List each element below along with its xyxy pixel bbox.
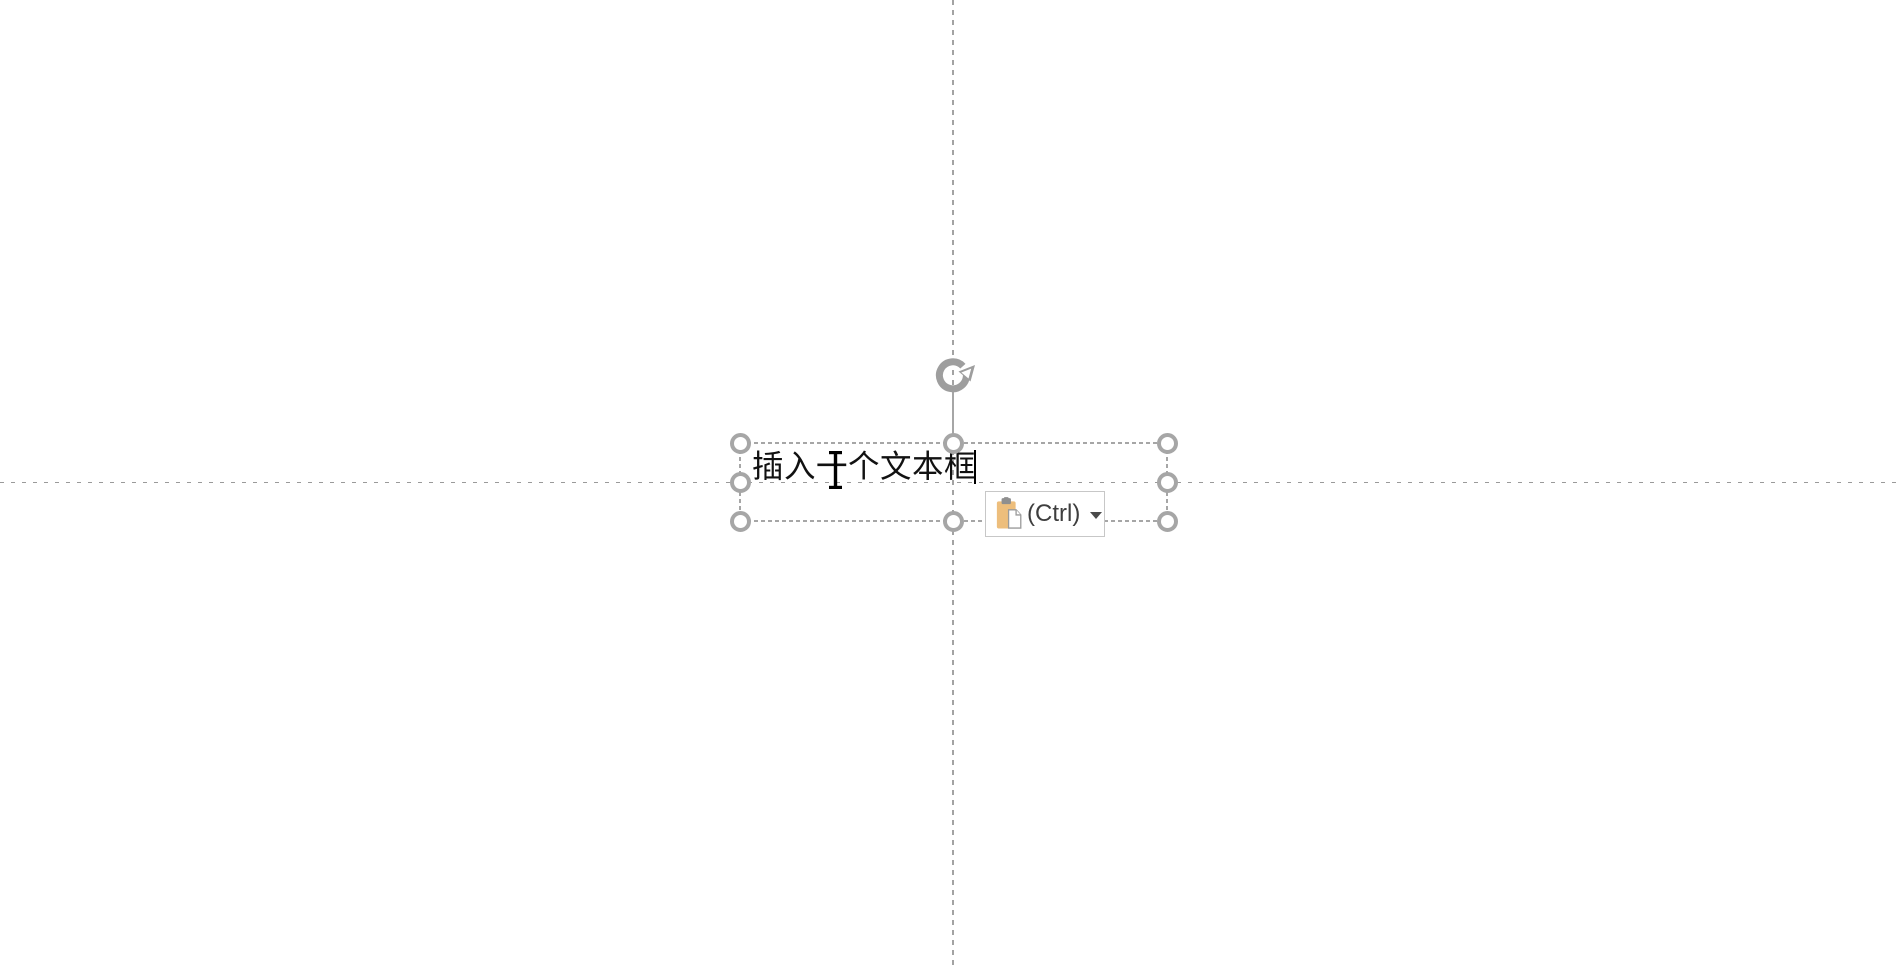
resize-handle-bottom-right[interactable] [1157, 511, 1178, 532]
vertical-center-guide [952, 0, 954, 970]
resize-handle-top-center[interactable] [943, 433, 964, 454]
text-ibeam-cursor-icon [827, 451, 844, 489]
paste-options-label: (Ctrl) [1027, 500, 1080, 528]
resize-handle-middle-right[interactable] [1157, 472, 1178, 493]
slide-canvas[interactable]: 插入一个文本框 (Ctrl) [0, 0, 1896, 972]
textbox-text[interactable]: 插入一个文本框 [752, 449, 976, 485]
dropdown-arrow-icon[interactable] [1090, 512, 1102, 519]
resize-handle-bottom-center[interactable] [943, 511, 964, 532]
resize-handle-middle-left[interactable] [730, 472, 751, 493]
resize-handle-top-left[interactable] [730, 433, 751, 454]
resize-handle-top-right[interactable] [1157, 433, 1178, 454]
paste-options-button[interactable]: (Ctrl) [985, 491, 1105, 537]
text-caret [974, 450, 976, 484]
paste-clipboard-icon [995, 497, 1025, 531]
rotate-handle-icon[interactable] [929, 352, 977, 400]
resize-handle-bottom-left[interactable] [730, 511, 751, 532]
